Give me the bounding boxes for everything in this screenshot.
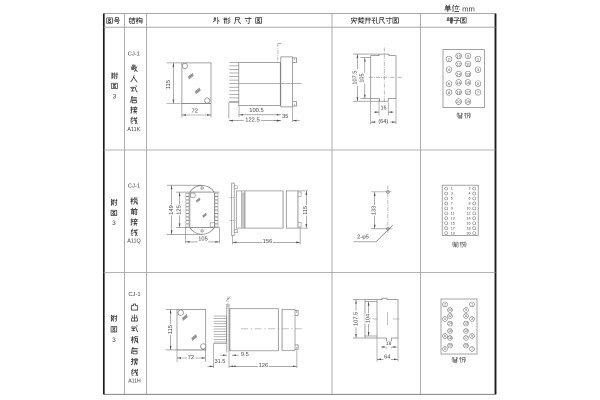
- svg-text:15: 15: [451, 221, 455, 225]
- svg-text:156: 156: [263, 239, 273, 245]
- svg-text:18: 18: [466, 226, 470, 230]
- svg-text:CJ-1: CJ-1: [128, 52, 140, 58]
- svg-text:126: 126: [259, 363, 269, 369]
- svg-text:104: 104: [365, 314, 371, 323]
- svg-text:100.5: 100.5: [249, 108, 264, 114]
- svg-text:11: 11: [451, 211, 455, 215]
- svg-text:3: 3: [113, 93, 117, 100]
- svg-text:12: 12: [466, 211, 470, 215]
- svg-text:149: 149: [169, 205, 175, 215]
- svg-text:10: 10: [466, 207, 470, 211]
- svg-text:3: 3: [477, 67, 479, 72]
- svg-text:20: 20: [466, 231, 470, 235]
- svg-text:6: 6: [469, 197, 471, 201]
- svg-text:8: 8: [469, 202, 471, 206]
- svg-text:18: 18: [456, 90, 460, 95]
- svg-text:19: 19: [451, 231, 455, 235]
- svg-text:18: 18: [448, 336, 452, 340]
- svg-text:133: 133: [372, 206, 378, 215]
- svg-text:10: 10: [448, 308, 452, 312]
- svg-text:115: 115: [303, 206, 309, 215]
- svg-text:3: 3: [451, 192, 453, 196]
- svg-text:19: 19: [464, 344, 468, 348]
- svg-text:1: 1: [471, 303, 473, 307]
- svg-text:2: 2: [444, 303, 446, 307]
- svg-text:122.5: 122.5: [245, 118, 260, 124]
- svg-text:2: 2: [469, 187, 471, 191]
- svg-text:3: 3: [112, 337, 116, 344]
- svg-text:13: 13: [464, 322, 468, 326]
- svg-text:11: 11: [466, 62, 470, 67]
- svg-text:15: 15: [466, 80, 470, 85]
- svg-text:7: 7: [471, 347, 473, 351]
- svg-text:5: 5: [471, 334, 473, 338]
- svg-text:20: 20: [448, 344, 452, 348]
- svg-text:17: 17: [451, 226, 455, 230]
- svg-text:A11K: A11K: [127, 127, 140, 133]
- svg-text:12: 12: [448, 314, 452, 318]
- svg-text:7: 7: [451, 202, 453, 206]
- svg-text:3: 3: [471, 317, 473, 321]
- svg-text:mm: mm: [462, 4, 475, 13]
- svg-text:8: 8: [448, 90, 450, 95]
- svg-text:35: 35: [282, 114, 288, 120]
- svg-text:9.5: 9.5: [241, 352, 249, 358]
- svg-text:11: 11: [464, 314, 468, 318]
- svg-text:(64): (64): [378, 119, 388, 125]
- svg-text:115: 115: [166, 80, 172, 89]
- svg-text:16: 16: [456, 80, 460, 85]
- svg-text:14: 14: [448, 322, 452, 326]
- svg-text:9: 9: [467, 54, 469, 59]
- svg-text:): ): [469, 113, 471, 119]
- svg-text:105: 105: [360, 73, 366, 82]
- svg-text:16: 16: [466, 221, 470, 225]
- svg-text:8: 8: [444, 347, 446, 351]
- svg-text:15: 15: [464, 329, 468, 333]
- svg-text:13: 13: [466, 72, 470, 77]
- svg-text:64: 64: [384, 355, 390, 361]
- svg-text:2: 2: [448, 57, 450, 62]
- svg-text:7: 7: [477, 90, 479, 95]
- svg-text:9: 9: [451, 207, 453, 211]
- svg-text::: :: [459, 5, 461, 12]
- svg-text:72: 72: [188, 355, 194, 361]
- svg-text:A11H: A11H: [128, 379, 141, 385]
- svg-text:1: 1: [451, 187, 453, 191]
- svg-text:6: 6: [444, 334, 446, 338]
- svg-text:125: 125: [177, 205, 183, 215]
- svg-text:14: 14: [466, 216, 470, 220]
- svg-text:CJ-1: CJ-1: [128, 292, 140, 298]
- svg-text:A11Q: A11Q: [127, 238, 140, 244]
- svg-text:(: (: [452, 242, 454, 248]
- svg-text:13: 13: [451, 216, 455, 220]
- svg-text:72: 72: [191, 108, 197, 114]
- svg-text:4: 4: [444, 317, 446, 321]
- svg-text:16: 16: [381, 106, 387, 112]
- svg-text:31.5: 31.5: [214, 359, 225, 365]
- svg-text:3: 3: [112, 220, 116, 227]
- svg-text:16: 16: [448, 329, 452, 333]
- svg-text:4: 4: [469, 192, 471, 196]
- svg-text:17: 17: [466, 90, 470, 95]
- svg-text:): ): [465, 242, 467, 248]
- svg-text:2-φ5: 2-φ5: [357, 234, 369, 240]
- svg-text:5: 5: [451, 197, 453, 201]
- svg-text:107.5: 107.5: [353, 312, 359, 326]
- svg-text:17: 17: [464, 336, 468, 340]
- svg-text:5: 5: [477, 81, 479, 86]
- svg-text:): ): [464, 357, 466, 363]
- svg-text:6: 6: [448, 81, 450, 86]
- svg-text:115: 115: [168, 325, 174, 334]
- svg-text:9: 9: [465, 308, 467, 312]
- svg-text:CJ-1: CJ-1: [128, 183, 140, 189]
- svg-text:16: 16: [386, 341, 392, 347]
- svg-text:12: 12: [456, 62, 460, 67]
- svg-text:19: 19: [466, 99, 470, 104]
- svg-text:105: 105: [198, 237, 208, 243]
- svg-text:1: 1: [477, 57, 479, 62]
- svg-text:107.5: 107.5: [353, 71, 359, 85]
